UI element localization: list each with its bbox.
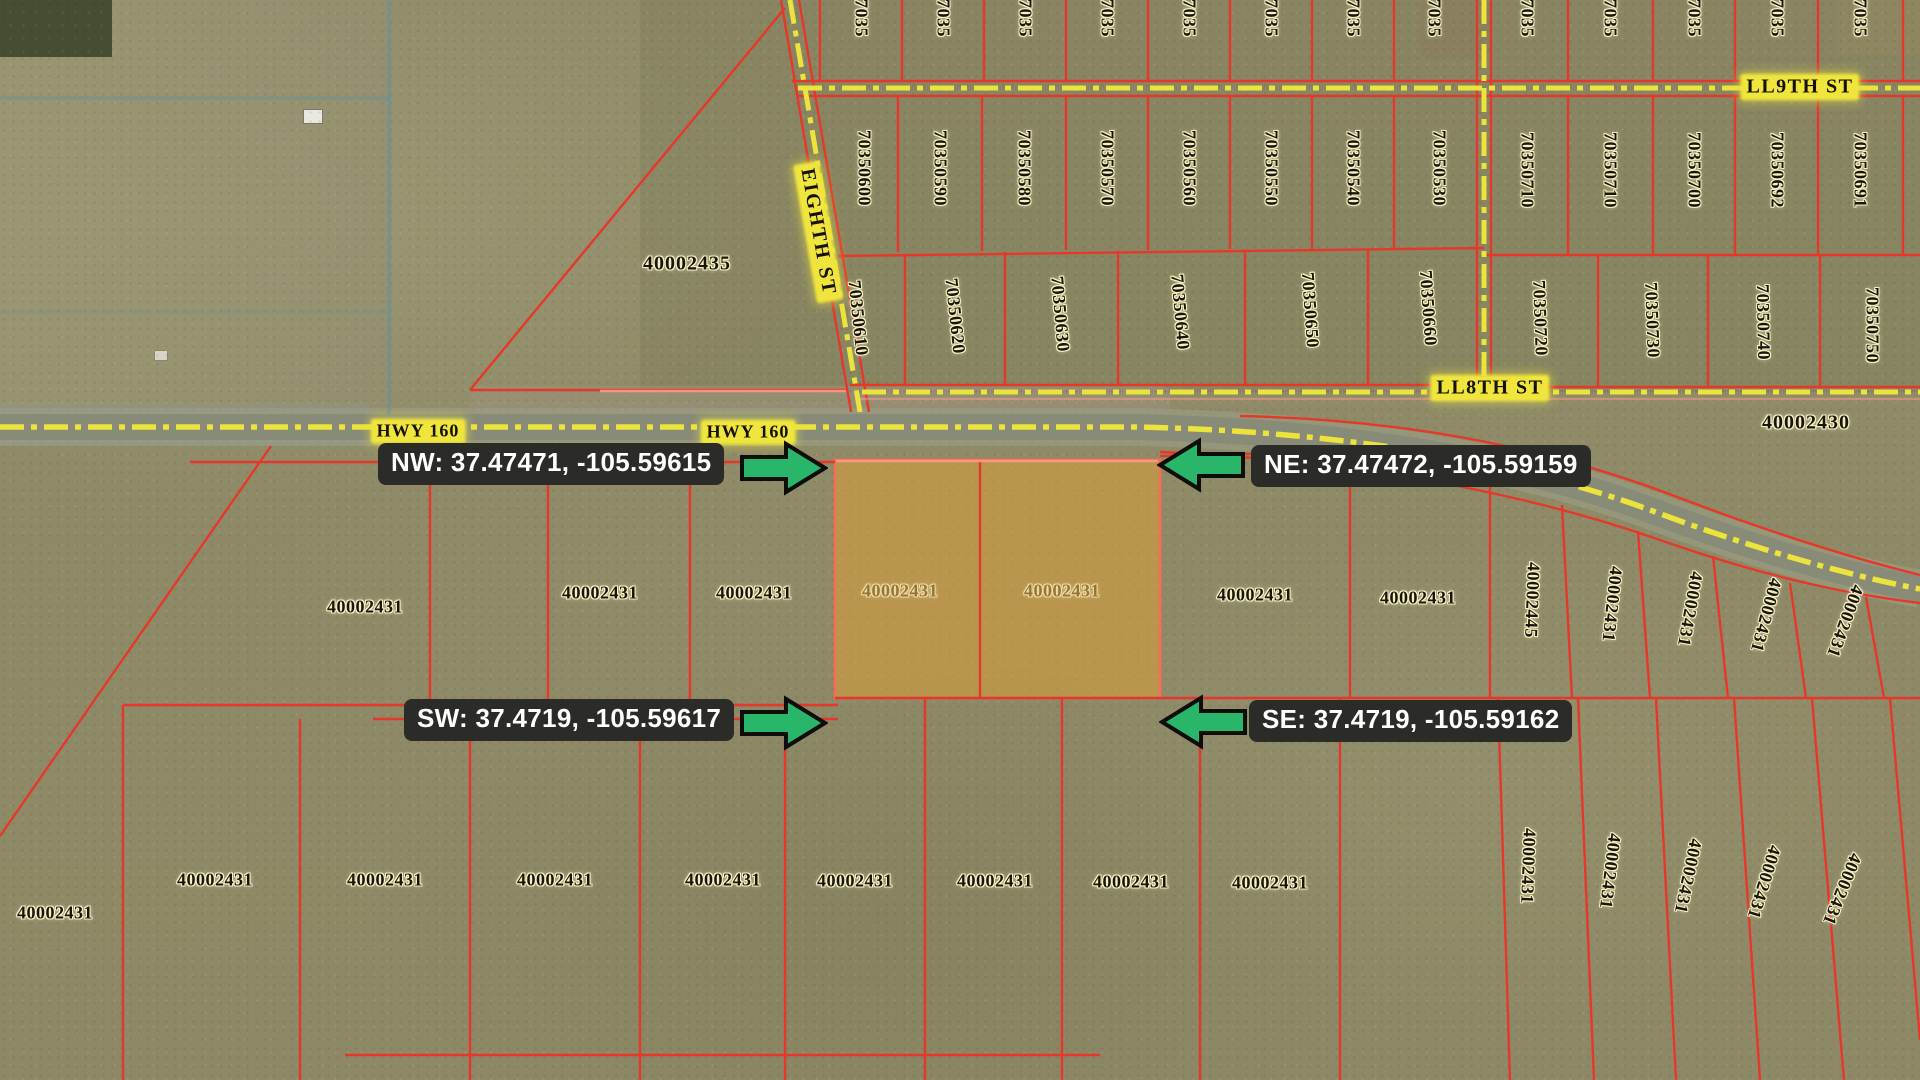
utility-roads: [0, 0, 389, 418]
corner-arrow-se-icon: [1159, 694, 1247, 750]
corner-arrow-nw-icon: [740, 440, 828, 496]
callout-se: SE: 37.4719, -105.59162: [1249, 700, 1572, 742]
corner-arrow-ne-icon: [1157, 437, 1245, 493]
callout-ne: NE: 37.47472, -105.59159: [1251, 445, 1591, 487]
parcel-geometry: [0, 0, 1920, 1080]
map-canvas[interactable]: 7035703570357035703570357035703570357035…: [0, 0, 1920, 1080]
callout-sw: SW: 37.4719, -105.59617: [404, 699, 734, 741]
highlighted-parcel[interactable]: [835, 460, 1160, 698]
corner-arrow-sw-icon: [740, 695, 828, 751]
callout-nw: NW: 37.47471, -105.59615: [378, 443, 724, 485]
